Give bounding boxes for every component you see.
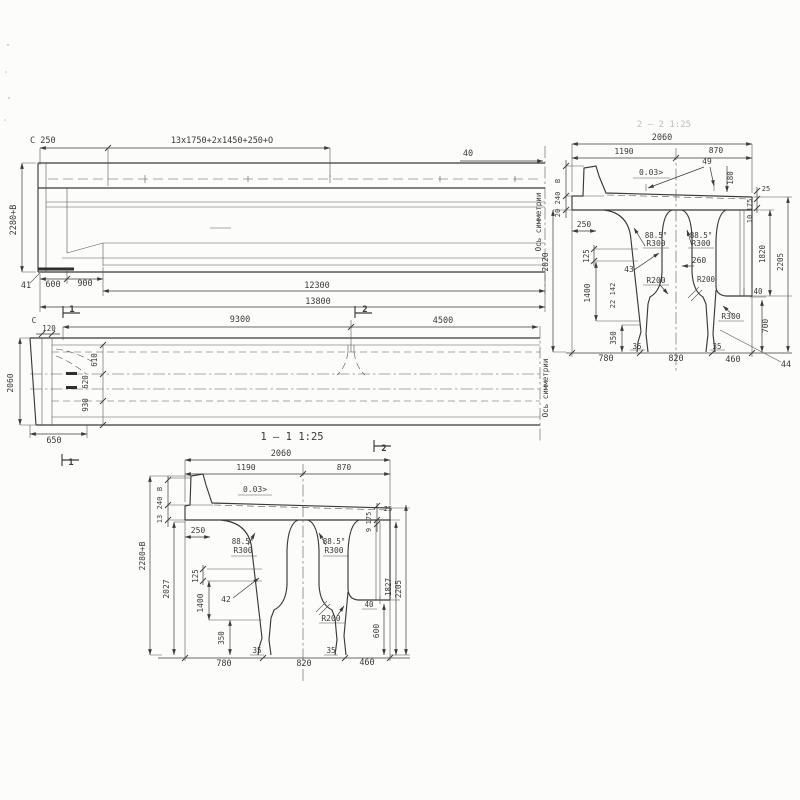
dim-1400-label: 1400 bbox=[196, 593, 205, 612]
dim-13-label: 13 bbox=[156, 515, 164, 523]
dim-600-label: 600 bbox=[372, 624, 381, 639]
dim-2060-label: 2060 bbox=[652, 133, 672, 143]
dim-1400-label: 1400 bbox=[583, 283, 592, 302]
dim-2060-label: 2060 bbox=[6, 373, 15, 392]
section-1-title: 1 — 1 1:25 bbox=[260, 431, 323, 443]
dim-9300-label: 9300 bbox=[230, 315, 250, 325]
dim-35-left-label: 35 bbox=[252, 646, 261, 655]
symmetry-axis-label: Ось симметрии bbox=[541, 359, 550, 418]
dim-820-label: 820 bbox=[668, 354, 683, 364]
slope-label: 0.03> bbox=[639, 168, 663, 177]
dim-9-label: 9 bbox=[365, 528, 373, 532]
embed-mark-1 bbox=[66, 372, 77, 375]
r300-bottom-label: R300 bbox=[721, 312, 740, 321]
dim-870-label: 870 bbox=[709, 146, 724, 155]
dim-height-label: 2280+B bbox=[9, 205, 19, 236]
dim-600-label: 600 bbox=[45, 280, 60, 290]
dim-2205-label: 2205 bbox=[776, 253, 785, 271]
plan-outline bbox=[30, 338, 540, 425]
leader-angle-left bbox=[634, 228, 645, 246]
angle-left-label: 88.5° bbox=[232, 537, 255, 546]
dim-1827-label: 1827 bbox=[384, 578, 393, 596]
dim-43-label: 43 bbox=[624, 265, 634, 274]
dim-820-label: 820 bbox=[296, 659, 311, 669]
dim-ticks bbox=[64, 145, 111, 282]
slope-label: 0.03> bbox=[243, 485, 267, 494]
dim-250-label: 250 bbox=[191, 526, 206, 535]
drawing-sheet: C 250 13x1750+2x1450+250+O 40 2280+B 41 … bbox=[0, 0, 800, 800]
symmetry-axis-label: Ось симметрии bbox=[534, 193, 543, 252]
section-1-1-view: 2060 1190 870 0.03> B 240 13 250 2280+B … bbox=[138, 449, 410, 684]
dim-20-label: 20 bbox=[554, 209, 562, 217]
dim-22-label: 22 bbox=[609, 300, 617, 308]
plan-dashed-lines bbox=[52, 349, 540, 401]
girder-drawing: C 250 13x1750+2x1450+250+O 40 2280+B 41 … bbox=[0, 0, 800, 800]
dim-120-label: 120 bbox=[42, 324, 56, 333]
dim-40-label: 40 bbox=[364, 600, 374, 609]
dim-460-label: 460 bbox=[359, 658, 374, 668]
section-mark-lines bbox=[62, 306, 391, 466]
dim-142-label: 142 bbox=[609, 283, 617, 296]
scan-specks bbox=[4, 44, 10, 121]
angle-right-label: 88.5° bbox=[323, 537, 346, 546]
radius-right-label: R300 bbox=[324, 546, 343, 555]
dim-2060-label: 2060 bbox=[271, 449, 291, 459]
extension-ref-lines bbox=[150, 460, 410, 661]
plan-view: 1 2 2 1 9300 4500 C 120 2060 610 620 930… bbox=[6, 305, 550, 468]
mark-1-bottom-label: 1 bbox=[68, 458, 73, 468]
dim-44-label: 44 bbox=[781, 360, 791, 370]
dim-42-label: 42 bbox=[221, 595, 231, 604]
chain-ticks bbox=[165, 471, 393, 661]
leader-43 bbox=[634, 253, 659, 270]
embed-mark-2 bbox=[66, 386, 77, 389]
dim-40-label: 40 bbox=[463, 149, 473, 159]
tendon-marks bbox=[145, 175, 515, 228]
dim-2020-label: 2020 bbox=[541, 252, 550, 271]
dim-700-label: 700 bbox=[761, 319, 770, 334]
dim-900-label: 900 bbox=[77, 279, 92, 289]
plan-inner-lines bbox=[42, 338, 540, 425]
leader-r200-left bbox=[660, 285, 668, 294]
dim-650-label: 650 bbox=[46, 436, 61, 446]
dim-41-label: 41 bbox=[21, 281, 31, 291]
dim-35-left-label: 35 bbox=[632, 342, 641, 351]
dim-780-label: 780 bbox=[216, 659, 231, 669]
dim-c-label: C bbox=[32, 316, 37, 325]
dim-180-label: 180 bbox=[726, 171, 735, 185]
dim-260-label: 260 bbox=[692, 256, 707, 265]
r200-right-label: R200 bbox=[697, 275, 716, 284]
dim-1190-label: 1190 bbox=[614, 147, 633, 156]
mark-2-bottom-label: 2 bbox=[381, 444, 386, 454]
dim-240-label: 240 bbox=[554, 192, 562, 205]
dim-b-label: B bbox=[554, 179, 562, 183]
dim-175-label: 175 bbox=[746, 199, 754, 212]
dim-125-label: 125 bbox=[191, 569, 200, 583]
dim-2027-label: 2027 bbox=[162, 579, 171, 598]
dim-35-right-label: 35 bbox=[326, 646, 335, 655]
dim-25-label: 25 bbox=[384, 505, 392, 513]
dim-13800-label: 13800 bbox=[305, 297, 331, 307]
dim-610-label: 610 bbox=[90, 353, 99, 367]
radius-left-label: R300 bbox=[646, 239, 665, 248]
dim-4500-label: 4500 bbox=[433, 316, 453, 326]
dim-35-right-label: 35 bbox=[712, 342, 721, 351]
dim-780-label: 780 bbox=[598, 354, 613, 364]
dim-240-label: 240 bbox=[156, 497, 164, 510]
dim-12300-label: 12300 bbox=[304, 281, 330, 291]
dim-930-label: 930 bbox=[81, 398, 90, 412]
section-2-2-view: 2 — 2 1:25 2060 1190 870 bbox=[541, 120, 792, 372]
leader-49-b bbox=[710, 167, 714, 186]
radius-right-label: R300 bbox=[691, 239, 710, 248]
dim-350-label: 350 bbox=[217, 631, 226, 645]
girder-inner-lines bbox=[46, 163, 545, 272]
dim-25-label: 25 bbox=[762, 185, 770, 193]
radius-left-label: R300 bbox=[233, 546, 252, 555]
dim-175-label: 175 bbox=[365, 512, 373, 525]
mark-1-top-label: 1 bbox=[69, 305, 74, 315]
dim-1820-label: 1820 bbox=[758, 244, 767, 263]
r200-left-label: R200 bbox=[646, 276, 665, 285]
dim-49-label: 49 bbox=[702, 157, 712, 166]
deck-surface-line bbox=[607, 195, 750, 199]
dim-40-label: 40 bbox=[753, 287, 763, 296]
extension-lines bbox=[22, 148, 545, 312]
dim-125-label: 125 bbox=[582, 249, 591, 263]
joint-lines bbox=[740, 210, 744, 296]
mark-2-top-label: 2 bbox=[362, 305, 367, 315]
joint-lines bbox=[376, 522, 380, 600]
elevation-view: C 250 13x1750+2x1450+250+O 40 2280+B 41 … bbox=[9, 136, 545, 312]
dim-b-label: B bbox=[156, 487, 164, 491]
dim-350-label: 350 bbox=[609, 331, 618, 345]
r200-label: R200 bbox=[321, 614, 340, 623]
dim-460-label: 460 bbox=[725, 355, 740, 365]
dim-1190-label: 1190 bbox=[236, 463, 255, 472]
dim-10-label: 10 bbox=[746, 215, 754, 223]
dim-620-label: 620 bbox=[81, 375, 90, 389]
girder-outline bbox=[38, 163, 545, 272]
dim-2205-label: 2205 bbox=[394, 580, 403, 598]
dim-250-label: 250 bbox=[577, 220, 592, 229]
dim-c250-label: C 250 bbox=[30, 136, 56, 146]
dim-spacing-label: 13x1750+2x1450+250+O bbox=[171, 136, 273, 146]
dim-870-label: 870 bbox=[337, 463, 352, 472]
section-2-title: 2 — 2 1:25 bbox=[637, 120, 691, 130]
dim-2280-label: 2280+B bbox=[138, 541, 147, 570]
